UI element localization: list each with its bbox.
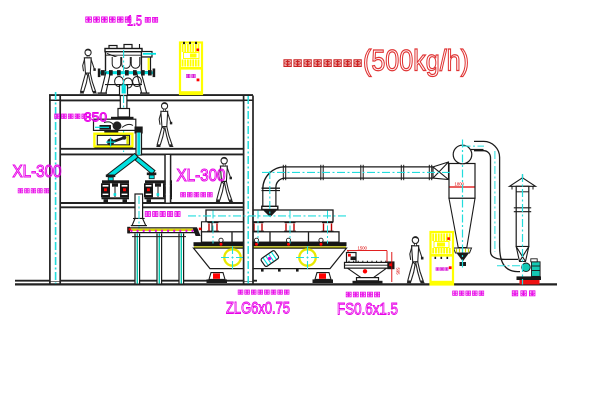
svg-text:XL-300: XL-300 [13, 161, 62, 181]
svg-text:(500kg/h): (500kg/h) [363, 45, 469, 78]
svg-text:1500: 1500 [358, 246, 368, 251]
svg-text:XL-300: XL-300 [177, 165, 226, 185]
svg-text:595: 595 [396, 268, 401, 276]
svg-text:FS0.6x1.5: FS0.6x1.5 [337, 300, 398, 319]
svg-text:ZLG6x0.75: ZLG6x0.75 [226, 300, 290, 318]
svg-text:1.5: 1.5 [127, 13, 142, 30]
svg-text:350: 350 [84, 110, 107, 124]
